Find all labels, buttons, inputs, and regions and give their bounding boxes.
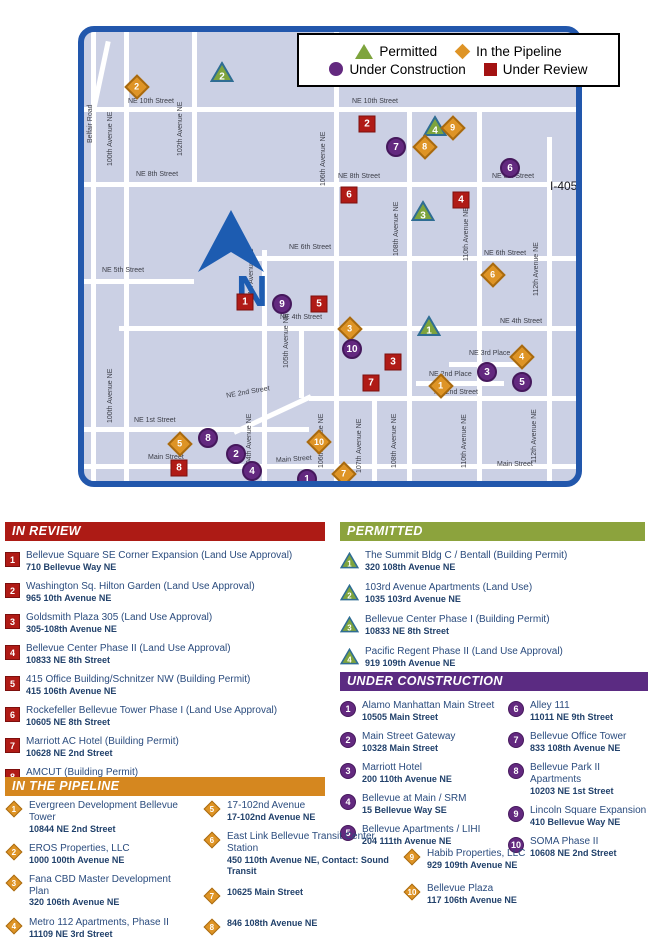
item-title: Fana CBD Master Development Plan bbox=[29, 874, 193, 898]
list-item: 2EROS Properties, LLC1000 100th Avenue N… bbox=[5, 843, 193, 866]
list-item: 3Bellevue Center Phase I (Building Permi… bbox=[340, 614, 645, 638]
list-item: 8846 108th Avenue NE bbox=[203, 918, 395, 933]
item-title: The Summit Bldg C / Bentall (Building Pe… bbox=[365, 550, 567, 562]
list-item: 4Bellevue Center Phase II (Land Use Appr… bbox=[5, 643, 325, 666]
legend-item-review: Under Review bbox=[484, 62, 588, 77]
street-label: 102th Avenue NE bbox=[177, 102, 184, 156]
item-address: 17-102nd Avenue NE bbox=[227, 812, 315, 823]
square-review-icon bbox=[484, 63, 497, 76]
review-number-badge: 5 bbox=[5, 676, 20, 691]
map-marker-construction: 6 bbox=[500, 158, 520, 178]
item-title: Habib Properties, LLC bbox=[427, 848, 525, 860]
permitted-number-badge: 3 bbox=[340, 616, 359, 638]
svg-text:2: 2 bbox=[347, 591, 352, 600]
street-line bbox=[407, 107, 412, 481]
street-label: NE 4th Street bbox=[500, 318, 542, 325]
item-address: 11011 NE 9th Street bbox=[530, 712, 613, 723]
item-address: 833 108th Avenue NE bbox=[530, 743, 626, 754]
map-marker-construction: 3 bbox=[477, 362, 497, 382]
construction-number-badge: 6 bbox=[508, 701, 524, 717]
item-title: Lincoln Square Expansion bbox=[530, 805, 646, 817]
item-title: SOMA Phase II bbox=[530, 836, 617, 848]
item-title: Washington Sq. Hilton Garden (Land Use A… bbox=[26, 581, 255, 593]
list-item: 6Rockefeller Bellevue Tower Phase I (Lan… bbox=[5, 705, 325, 728]
street-line bbox=[84, 107, 576, 112]
item-address: 450 110th Avenue NE, Contact: Sound Tran… bbox=[227, 855, 395, 878]
street-label: NE 5th Street bbox=[102, 267, 144, 274]
item-address: 10505 Main Street bbox=[362, 712, 494, 723]
freeway-label: I-405 bbox=[550, 180, 577, 192]
item-address: 965 10th Avenue NE bbox=[26, 593, 255, 604]
construction-number-badge: 3 bbox=[340, 763, 356, 779]
section-header: PERMITTED bbox=[340, 522, 645, 541]
street-label: Main Street bbox=[276, 455, 312, 464]
item-title: 103rd Avenue Apartments (Land Use) bbox=[365, 582, 532, 594]
list-item: 6Alley 11111011 NE 9th Street bbox=[508, 700, 648, 723]
map-legend: Permitted In the Pipeline Under Construc… bbox=[297, 33, 620, 87]
street-line bbox=[299, 326, 304, 398]
pipeline-col-1: 1Evergreen Development Bellevue Tower108… bbox=[5, 800, 193, 948]
construction-number-badge: 8 bbox=[508, 763, 524, 779]
list-item: 4Metro 112 Apartments, Phase II11109 NE … bbox=[5, 917, 193, 940]
item-address: 10625 Main Street bbox=[227, 887, 303, 898]
list-item: 3Fana CBD Master Development Plan320 106… bbox=[5, 874, 193, 909]
list-item: 9Lincoln Square Expansion410 Bellevue Wa… bbox=[508, 805, 648, 828]
in-review-list: 1Bellevue Square SE Corner Expansion (La… bbox=[5, 541, 325, 790]
street-label: NE 8th Street bbox=[136, 171, 178, 178]
construction-number-badge: 9 bbox=[508, 806, 524, 822]
svg-text:3: 3 bbox=[420, 211, 426, 222]
item-title: Bellevue Square SE Corner Expansion (Lan… bbox=[26, 550, 292, 562]
street-label: NE 10th Street bbox=[352, 98, 398, 105]
street-label: 100th Avenue NE bbox=[107, 112, 114, 166]
list-item: 3Goldsmith Plaza 305 (Land Use Approval)… bbox=[5, 612, 325, 635]
triangle-permitted-icon bbox=[355, 44, 373, 59]
legend-label: Under Construction bbox=[349, 62, 465, 77]
item-address: 1035 103rd Avenue NE bbox=[365, 594, 532, 605]
street-label: 108th Avenue NE bbox=[391, 414, 398, 468]
legend-row: Under Construction Under Review bbox=[299, 62, 618, 77]
street-label: 112th Avenue NE bbox=[531, 409, 538, 463]
street-label: 99th Avenue NE bbox=[78, 219, 84, 269]
item-address: 919 109th Avenue NE bbox=[365, 658, 563, 669]
legend-item-construction: Under Construction bbox=[329, 62, 465, 77]
street-label: NE 3rd Place bbox=[469, 350, 510, 357]
item-address: 10844 NE 2nd Street bbox=[29, 824, 193, 835]
street-line bbox=[477, 107, 482, 481]
map-marker-pipeline: 10 bbox=[306, 429, 331, 454]
item-title: Bellevue Office Tower bbox=[530, 731, 626, 743]
section-header: UNDER CONSTRUCTION bbox=[340, 672, 648, 691]
item-address: 320 108th Avenue NE bbox=[365, 562, 567, 573]
item-title: Main Street Gateway bbox=[362, 731, 455, 743]
pipeline-col-2: 517-102nd Avenue17-102nd Avenue NE 6East… bbox=[203, 800, 395, 948]
item-title: Rockefeller Bellevue Tower Phase I (Land… bbox=[26, 705, 277, 717]
legend-item-permitted: Permitted bbox=[355, 44, 437, 59]
list-item: 710625 Main Street bbox=[203, 887, 395, 902]
pipeline-number-badge: 2 bbox=[6, 843, 23, 860]
map-marker-review: 5 bbox=[311, 296, 328, 313]
legend-row: Permitted In the Pipeline bbox=[299, 44, 618, 59]
map-marker-permitted: 2 bbox=[210, 62, 234, 83]
diamond-pipeline-icon bbox=[455, 43, 471, 59]
pipeline-number-badge: 10 bbox=[404, 884, 421, 901]
legend-label: Permitted bbox=[379, 44, 437, 59]
street-label: 112th Avenue NE bbox=[533, 242, 540, 296]
street-line bbox=[372, 396, 377, 481]
item-address: 320 106th Avenue NE bbox=[29, 897, 193, 908]
list-item: 3Marriott Hotel200 110th Avenue NE bbox=[340, 762, 498, 785]
map-marker-construction: 5 bbox=[512, 372, 532, 392]
list-item: 8Bellevue Park II Apartments10203 NE 1st… bbox=[508, 762, 648, 797]
list-item: 10Bellevue Plaza117 106th Avenue NE bbox=[403, 883, 643, 906]
street-line bbox=[84, 279, 194, 284]
map-marker-review: 8 bbox=[171, 460, 188, 477]
map-marker-construction: 2 bbox=[226, 444, 246, 464]
item-address: 846 108th Avenue NE bbox=[227, 918, 317, 929]
item-title: 415 Office Building/Schnitzer NW (Buildi… bbox=[26, 674, 250, 686]
item-address: 1000 100th Avenue NE bbox=[29, 855, 130, 866]
list-item: 9Habib Properties, LLC929 109th Avenue N… bbox=[403, 848, 643, 871]
item-title: Alamo Manhattan Main Street bbox=[362, 700, 494, 712]
construction-number-badge: 1 bbox=[340, 701, 356, 717]
map-marker-construction: 4 bbox=[242, 461, 262, 481]
item-address: 10628 NE 2nd Street bbox=[26, 748, 179, 759]
street-label: 106th Avenue NE bbox=[320, 132, 327, 186]
street-label: Belfair Road bbox=[87, 104, 94, 143]
street-line bbox=[84, 182, 576, 187]
list-item: 7Marriott AC Hotel (Building Permit)1062… bbox=[5, 736, 325, 759]
street-label: 108th Avenue NE bbox=[393, 202, 400, 256]
item-title: Alley 111 bbox=[530, 700, 613, 712]
map-marker-pipeline: 5 bbox=[167, 431, 192, 456]
street-line bbox=[334, 32, 339, 481]
pipeline-number-badge: 3 bbox=[6, 874, 23, 891]
item-address: 117 106th Avenue NE bbox=[427, 895, 517, 906]
map-marker-review: 7 bbox=[363, 375, 380, 392]
map-marker-pipeline: 3 bbox=[337, 316, 362, 341]
list-item: 517-102nd Avenue17-102nd Avenue NE bbox=[203, 800, 395, 823]
pipeline-list: 1Evergreen Development Bellevue Tower108… bbox=[5, 800, 395, 948]
item-address: 10605 NE 8th Street bbox=[26, 717, 277, 728]
svg-text:4: 4 bbox=[432, 126, 438, 137]
pipeline-number-badge: 5 bbox=[204, 801, 221, 818]
legend-item-pipeline: In the Pipeline bbox=[455, 44, 562, 59]
map-marker-review: 2 bbox=[359, 116, 376, 133]
item-title: East Link Bellevue Transit Center Statio… bbox=[227, 831, 395, 855]
permitted-number-badge: 4 bbox=[340, 648, 359, 670]
list-item: 2Washington Sq. Hilton Garden (Land Use … bbox=[5, 581, 325, 604]
under-construction-col-2: 6Alley 11111011 NE 9th Street 7Bellevue … bbox=[508, 700, 648, 867]
section-in-review: IN REVIEW 1Bellevue Square SE Corner Exp… bbox=[5, 522, 325, 798]
list-item: 1Alamo Manhattan Main Street10505 Main S… bbox=[340, 700, 498, 723]
street-label: NE 10th Street bbox=[128, 98, 174, 105]
list-item: 2103rd Avenue Apartments (Land Use)1035 … bbox=[340, 582, 645, 606]
review-number-badge: 7 bbox=[5, 738, 20, 753]
map-marker-construction: 10 bbox=[342, 339, 362, 359]
item-address: 11109 NE 3rd Street bbox=[29, 929, 169, 940]
pipeline-number-badge: 6 bbox=[204, 832, 221, 849]
svg-text:2: 2 bbox=[219, 72, 225, 83]
street-label: Main Street bbox=[497, 461, 533, 468]
map-marker-construction: 1 bbox=[297, 469, 317, 487]
street-label: NE 6th Street bbox=[289, 244, 331, 251]
item-address: 10203 NE 1st Street bbox=[530, 786, 648, 797]
item-title: EROS Properties, LLC bbox=[29, 843, 130, 855]
item-title: Evergreen Development Bellevue Tower bbox=[29, 800, 193, 824]
pipeline-number-badge: 8 bbox=[204, 919, 221, 936]
review-number-badge: 4 bbox=[5, 645, 20, 660]
street-label: 104th Avenue NE bbox=[246, 414, 253, 468]
map-marker-construction: 9 bbox=[272, 294, 292, 314]
svg-text:1: 1 bbox=[347, 559, 352, 568]
section-header: IN THE PIPELINE bbox=[5, 777, 325, 796]
item-address: 200 110th Avenue NE bbox=[362, 774, 452, 785]
street-label: NE 8th Street bbox=[338, 173, 380, 180]
item-address: 415 106th Avenue NE bbox=[26, 686, 250, 697]
item-title: Bellevue Center Phase II (Land Use Appro… bbox=[26, 643, 231, 655]
map-marker-pipeline: 8 bbox=[412, 134, 437, 159]
street-line bbox=[84, 427, 309, 432]
list-item: 1The Summit Bldg C / Bentall (Building P… bbox=[340, 550, 645, 574]
item-title: Pacific Regent Phase II (Land Use Approv… bbox=[365, 646, 563, 658]
street-label: NE 1st Street bbox=[134, 417, 176, 424]
list-item: 4Pacific Regent Phase II (Land Use Appro… bbox=[340, 646, 645, 670]
street-label: 110th Avenue NE bbox=[463, 207, 470, 261]
svg-text:4: 4 bbox=[347, 655, 352, 664]
item-title: Marriott Hotel bbox=[362, 762, 452, 774]
list-item: 1Evergreen Development Bellevue Tower108… bbox=[5, 800, 193, 835]
map-marker-construction: 8 bbox=[198, 428, 218, 448]
map-marker-pipeline: 6 bbox=[480, 262, 505, 287]
circle-construction-icon bbox=[329, 62, 343, 76]
item-address: 10328 Main Street bbox=[362, 743, 455, 754]
bellevue-street-map: NE 10th Street NE 10th Street Belfair Ro… bbox=[78, 26, 582, 487]
item-title: Metro 112 Apartments, Phase II bbox=[29, 917, 169, 929]
street-label: NE 6th Street bbox=[484, 250, 526, 257]
legend-label: Under Review bbox=[503, 62, 588, 77]
svg-text:1: 1 bbox=[426, 326, 432, 337]
list-item: 2Main Street Gateway10328 Main Street bbox=[340, 731, 498, 754]
map-marker-review: 3 bbox=[385, 354, 402, 371]
section-permitted: PERMITTED 1The Summit Bldg C / Bentall (… bbox=[340, 522, 645, 678]
item-address: 410 Bellevue Way NE bbox=[530, 817, 646, 828]
street-line bbox=[254, 256, 576, 261]
list-item: 1Bellevue Square SE Corner Expansion (La… bbox=[5, 550, 325, 573]
street-label: 100th Avenue NE bbox=[107, 369, 114, 423]
bellevue-development-map-page: { "legend": { "items": [ {"label": "Perm… bbox=[0, 0, 650, 932]
section-pipeline: IN THE PIPELINE bbox=[5, 777, 325, 796]
street-label: 105th Avenue NE bbox=[283, 314, 290, 368]
review-number-badge: 2 bbox=[5, 583, 20, 598]
item-title: Marriott AC Hotel (Building Permit) bbox=[26, 736, 179, 748]
construction-number-badge: 2 bbox=[340, 732, 356, 748]
review-number-badge: 1 bbox=[5, 552, 20, 567]
map-marker-review: 1 bbox=[237, 294, 254, 311]
permitted-number-badge: 2 bbox=[340, 584, 359, 606]
list-item: 7Bellevue Office Tower833 108th Avenue N… bbox=[508, 731, 648, 754]
item-address: 305-108th Avenue NE bbox=[26, 624, 212, 635]
map-marker-review: 4 bbox=[453, 192, 470, 209]
svg-text:3: 3 bbox=[347, 623, 352, 632]
map-marker-permitted: 3 bbox=[411, 201, 435, 222]
item-title: Bellevue Center Phase I (Building Permit… bbox=[365, 614, 550, 626]
map-marker-permitted: 1 bbox=[417, 316, 441, 337]
construction-number-badge: 7 bbox=[508, 732, 524, 748]
list-item: 5415 Office Building/Schnitzer NW (Build… bbox=[5, 674, 325, 697]
pipeline-number-badge: 7 bbox=[204, 888, 221, 905]
item-title: 17-102nd Avenue bbox=[227, 800, 315, 812]
pipeline-number-badge: 1 bbox=[6, 801, 23, 818]
permitted-list: 1The Summit Bldg C / Bentall (Building P… bbox=[340, 541, 645, 670]
map-marker-construction: 7 bbox=[386, 137, 406, 157]
street-label: 110th Avenue NE bbox=[461, 414, 468, 468]
legend-label: In the Pipeline bbox=[476, 44, 562, 59]
map-marker-review: 6 bbox=[341, 187, 358, 204]
item-address: 10833 NE 8th Street bbox=[26, 655, 231, 666]
permitted-number-badge: 1 bbox=[340, 552, 359, 574]
section-header: IN REVIEW bbox=[5, 522, 325, 541]
review-number-badge: 3 bbox=[5, 614, 20, 629]
item-address: 929 109th Avenue NE bbox=[427, 860, 525, 871]
item-title: Bellevue Plaza bbox=[427, 883, 517, 895]
item-title: Bellevue Park II Apartments bbox=[530, 762, 648, 786]
street-label: 107th Avenue NE bbox=[356, 419, 363, 473]
item-address: 710 Bellevue Way NE bbox=[26, 562, 292, 573]
list-item: 6East Link Bellevue Transit Center Stati… bbox=[203, 831, 395, 877]
item-title: Goldsmith Plaza 305 (Land Use Approval) bbox=[26, 612, 212, 624]
street-line bbox=[192, 32, 197, 182]
review-number-badge: 6 bbox=[5, 707, 20, 722]
item-address: 10833 NE 8th Street bbox=[365, 626, 550, 637]
pipeline-col-3: 9Habib Properties, LLC929 109th Avenue N… bbox=[403, 848, 643, 914]
pipeline-number-badge: 9 bbox=[404, 849, 421, 866]
